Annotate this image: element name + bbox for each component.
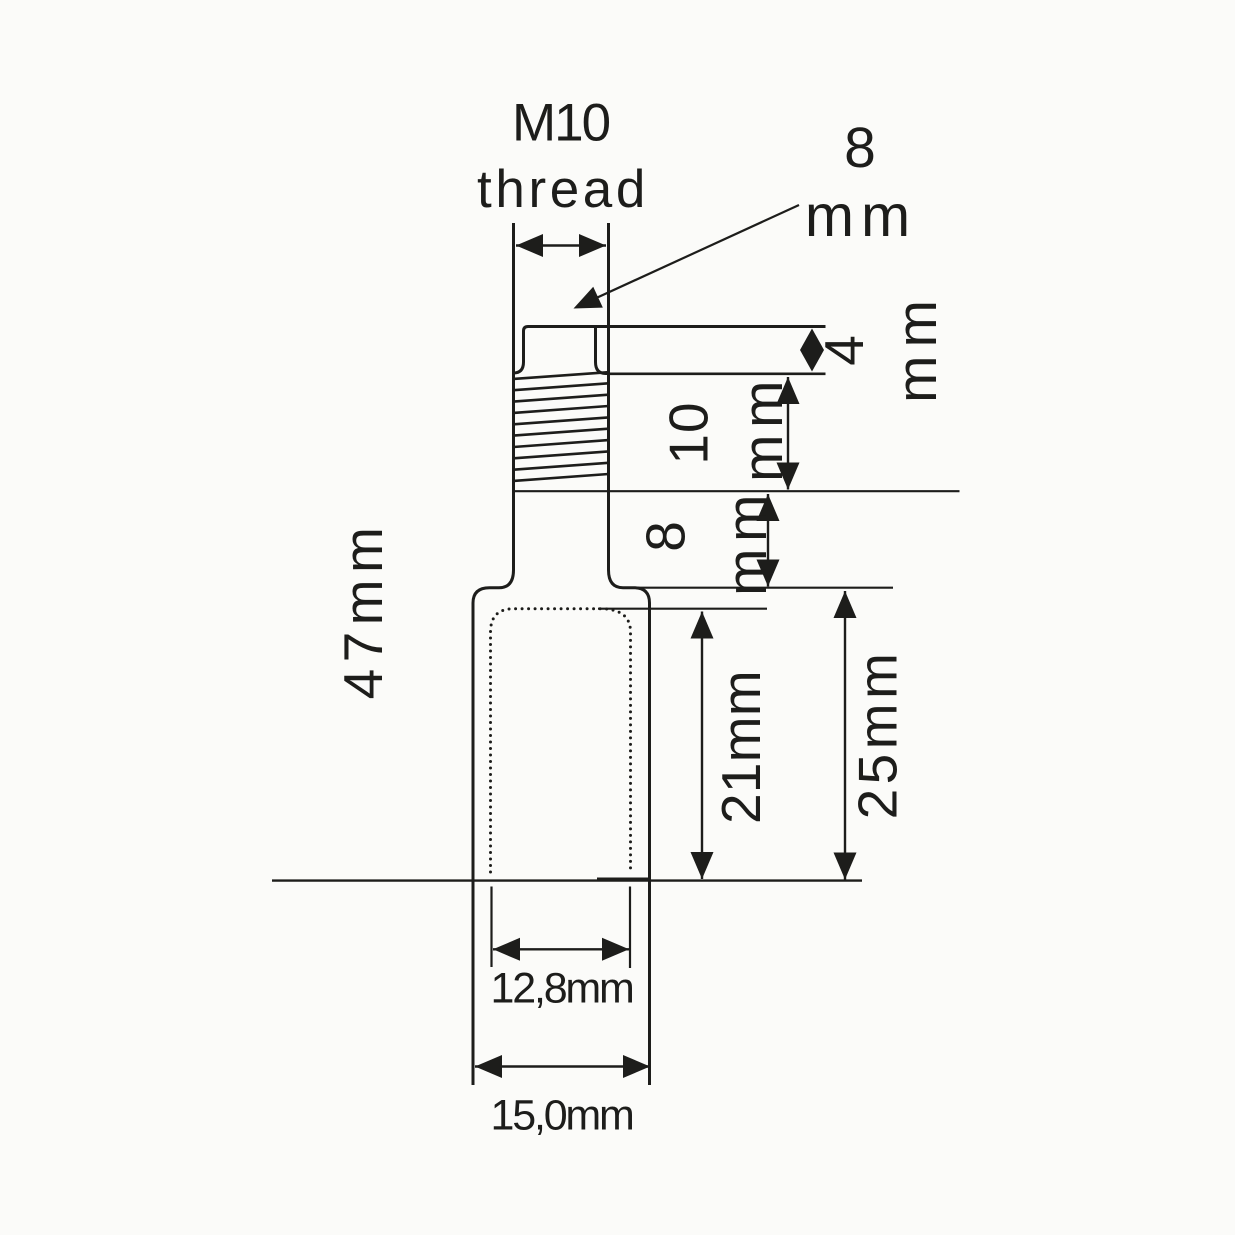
svg-text:8: 8 <box>635 521 697 552</box>
svg-text:4: 4 <box>813 335 875 366</box>
svg-text:8: 8 <box>844 116 876 180</box>
svg-text:21mm: 21mm <box>710 670 772 824</box>
svg-text:M10: M10 <box>512 94 610 153</box>
svg-text:mm: mm <box>805 183 917 249</box>
svg-text:47mm: 47mm <box>332 521 394 700</box>
svg-text:mm: mm <box>731 374 795 482</box>
svg-text:12,8mm: 12,8mm <box>491 965 633 1013</box>
svg-text:mm: mm <box>715 488 779 596</box>
svg-text:10: 10 <box>658 401 720 464</box>
svg-text:thread: thread <box>477 160 649 219</box>
svg-text:mm: mm <box>885 292 949 403</box>
svg-text:25mm: 25mm <box>847 649 909 820</box>
svg-text:15,0mm: 15,0mm <box>491 1092 633 1140</box>
